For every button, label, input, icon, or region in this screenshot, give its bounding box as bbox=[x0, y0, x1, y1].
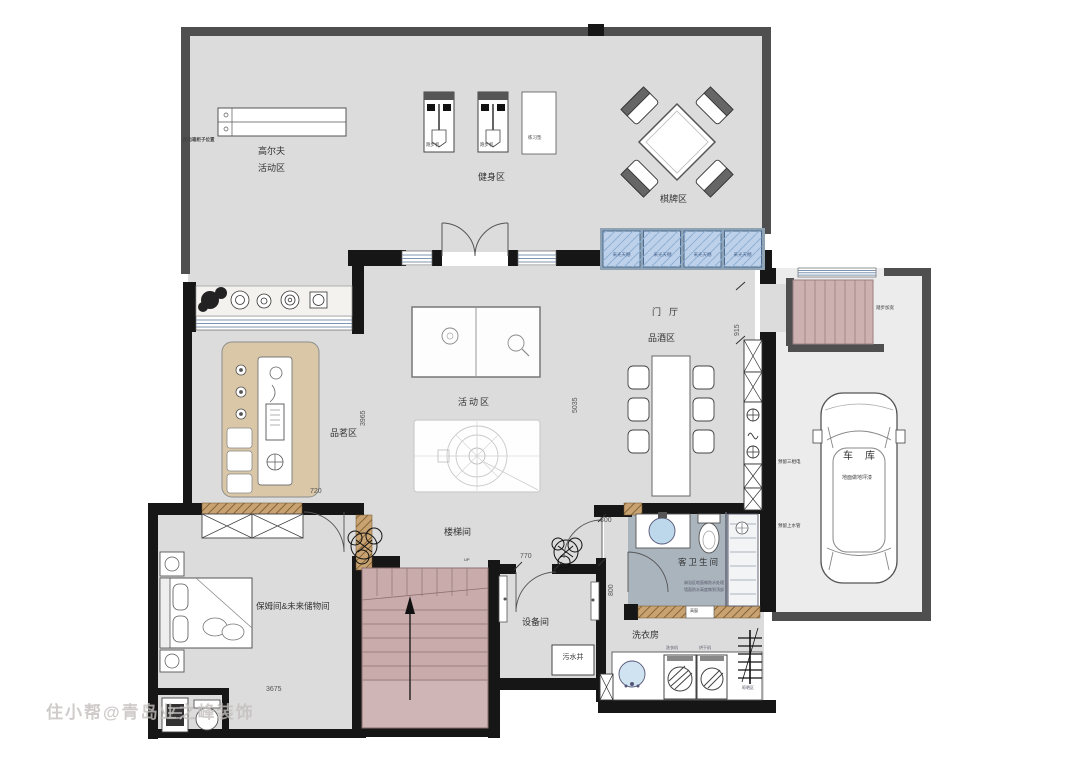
water-supply-note: 预留上水管 bbox=[778, 524, 801, 529]
room-label-equipment: 设备间 bbox=[522, 618, 549, 627]
distribution-box-note: 配电箱柜子位置 bbox=[183, 138, 215, 143]
label-treadmill-2: 跑步机 bbox=[480, 143, 494, 148]
label-skylight-3: 采光天棚 bbox=[684, 253, 721, 258]
main-stairs bbox=[362, 568, 488, 728]
dim-800-a: 800 bbox=[600, 517, 612, 524]
room-label-laundry: 洗衣房 bbox=[632, 631, 659, 640]
label-high-window: 高窗 bbox=[690, 609, 698, 613]
room-label-chess: 棋牌区 bbox=[660, 195, 687, 204]
pingpong-table bbox=[412, 307, 540, 377]
room-label-tea: 品茗区 bbox=[330, 429, 357, 438]
floor-plan-drawing bbox=[0, 0, 1080, 764]
bath-note-1: 淋浴区地面做防水处理 bbox=[684, 581, 724, 585]
steps-widen-note: 踏步加宽 bbox=[876, 306, 894, 311]
room-label-wine: 品酒区 bbox=[648, 334, 675, 343]
room-label-guest-bath: 客卫生间 bbox=[678, 558, 720, 567]
three-phase-note: 预留三相电 bbox=[778, 460, 801, 465]
dim-720: 720 bbox=[310, 488, 322, 495]
golf-table bbox=[218, 108, 346, 136]
label-skylight-1: 采光天棚 bbox=[603, 253, 640, 258]
dim-770: 770 bbox=[520, 553, 532, 560]
dim-800-b: 800 bbox=[608, 584, 615, 596]
skylight-panels bbox=[600, 228, 765, 270]
dim-3965: 3965 bbox=[360, 410, 367, 426]
dim-3675: 3675 bbox=[266, 686, 282, 693]
garage-floor-note: 地面做地坪漆 bbox=[842, 476, 872, 481]
label-sewage-well: 污水井 bbox=[552, 654, 594, 661]
foyer-cabinets bbox=[744, 340, 762, 510]
room-label-garage: 车库 bbox=[843, 452, 887, 462]
wardrobe bbox=[202, 514, 303, 538]
label-skylight-4: 采光天棚 bbox=[724, 253, 761, 258]
bath-note-2: 墙面防水高度做到顶部 bbox=[684, 588, 724, 592]
floor-plan-canvas: 高尔夫 活动区 健身区 跑步机 跑步机 练习垫 棋牌区 采光天棚 采光天棚 采光… bbox=[0, 0, 1080, 764]
porch-steps bbox=[793, 280, 873, 344]
room-label-fitness: 健身区 bbox=[478, 173, 505, 182]
room-label-stairwell: 楼梯间 bbox=[444, 528, 471, 537]
dim-915: 915 bbox=[734, 324, 741, 336]
room-label-golf-1: 高尔夫 bbox=[258, 147, 285, 156]
label-dryer: 烘干机 bbox=[699, 646, 711, 650]
label-treadmill-1: 跑步机 bbox=[426, 143, 440, 148]
label-mat: 练习垫 bbox=[528, 136, 542, 141]
label-drying-area: 晾晒区 bbox=[742, 686, 754, 690]
watermark: 住小帮@青岛业之峰装饰 bbox=[46, 704, 255, 721]
label-up: UP bbox=[464, 558, 470, 562]
label-skylight-2: 采光天棚 bbox=[644, 253, 681, 258]
exercise-mat bbox=[522, 92, 556, 154]
room-label-nanny: 保姆间&未来储物间 bbox=[256, 602, 330, 611]
tea-cabinet bbox=[222, 342, 319, 497]
room-label-foyer: 门厅 bbox=[652, 308, 686, 317]
car bbox=[813, 393, 905, 583]
dim-5035: 5035 bbox=[572, 397, 579, 413]
mahjong-table bbox=[414, 420, 540, 492]
decor-bay bbox=[196, 286, 352, 316]
room-label-activity: 活动区 bbox=[458, 398, 491, 407]
room-label-golf-2: 活动区 bbox=[258, 164, 285, 173]
label-washer: 洗衣机 bbox=[666, 646, 678, 650]
